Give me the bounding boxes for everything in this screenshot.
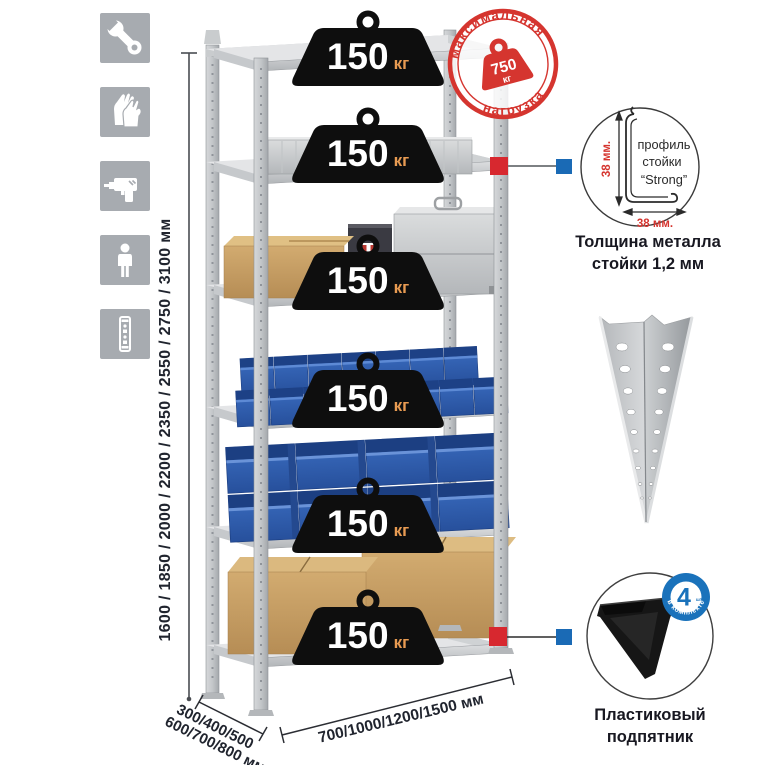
product-infographic: 1600 / 1850 / 2000 / 2200 / 2350 / 2550 …: [0, 0, 765, 765]
blue-marker-bottom: [556, 629, 572, 645]
load-badge: 150кг: [292, 14, 444, 87]
width-dimension: 700/1000/1200/1500 мм: [280, 669, 514, 747]
load-value: 150: [327, 378, 389, 419]
load-unit: кг: [394, 396, 410, 415]
kit-quantity-badge: 4 штуки в комплекте: [662, 573, 710, 621]
profile-dim-vertical: 38 мм.: [601, 141, 613, 177]
load-value: 150: [327, 36, 389, 77]
main-scene: 1600 / 1850 / 2000 / 2200 / 2350 / 2550 …: [0, 0, 765, 765]
height-dimension: 1600 / 1850 / 2000 / 2200 / 2350 / 2550 …: [157, 53, 197, 701]
width-label: 700/1000/1200/1500 мм: [317, 691, 486, 747]
large-bin: [365, 436, 436, 486]
profile-caption: Толщина металла стойки 1,2 мм: [553, 231, 743, 275]
load-value: 150: [327, 133, 389, 174]
load-badge: 150кг: [292, 111, 444, 184]
svg-text:стойки: стойки: [642, 154, 681, 169]
red-marker-top: [490, 157, 508, 175]
profile-detail-circle: 38 мм. 38 мм. профиль стойки “Strong”: [581, 107, 699, 230]
svg-text:“Strong”: “Strong”: [641, 172, 687, 187]
load-unit: кг: [394, 633, 410, 652]
max-load-stamp: максимальная нагрузка 750 кг: [437, 0, 568, 130]
load-value: 150: [327, 615, 389, 656]
foot-detail-circle: 4 штуки в комплекте: [587, 573, 713, 699]
load-value: 150: [327, 503, 389, 544]
foot-callout-connector: [489, 627, 572, 646]
load-value: 150: [327, 260, 389, 301]
profile-dim-horizontal: 38 мм.: [637, 218, 673, 230]
foot-caption: Пластиковый подпятник: [555, 704, 745, 748]
load-unit: кг: [394, 278, 410, 297]
profile-callout-connector: [490, 157, 572, 175]
kit-quantity-value: 4: [677, 584, 691, 612]
load-unit: кг: [394, 521, 410, 540]
red-marker-bottom: [489, 627, 507, 646]
angle-post-image: [600, 315, 692, 523]
small-bin: [439, 379, 474, 417]
load-unit: кг: [394, 151, 410, 170]
large-bin: [295, 440, 366, 490]
load-unit: кг: [394, 54, 410, 73]
blue-marker-top: [556, 159, 572, 174]
height-label: 1600 / 1850 / 2000 / 2200 / 2350 / 2550 …: [157, 218, 174, 641]
svg-text:профиль: профиль: [638, 137, 691, 152]
